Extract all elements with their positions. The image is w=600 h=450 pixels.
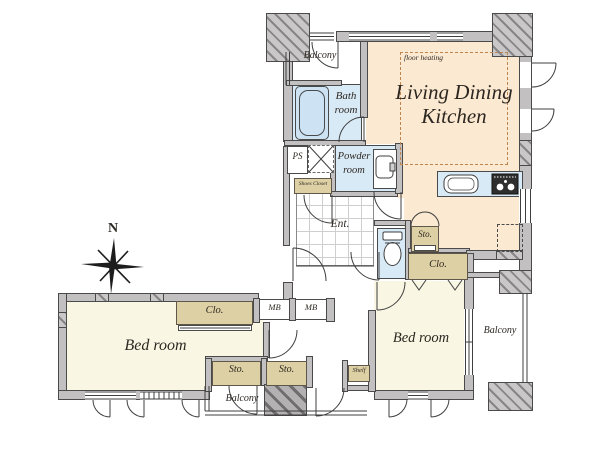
balcony-bottom-label: Balcony (213, 394, 271, 405)
bath-room-label-1: Bath (328, 91, 364, 103)
closet-right-label: Clo. (408, 259, 468, 270)
storage-toilet-label: Sto. (411, 230, 439, 239)
door-ldk-east-2 (532, 109, 554, 131)
window-top-1 (310, 32, 334, 41)
floor-heating-label: floor heating (404, 54, 464, 62)
kitchen-sink (444, 175, 478, 193)
railing-balcony-top (286, 52, 290, 85)
washing-machine-x (309, 146, 333, 172)
floor-plan-canvas: Balcony Bath room Living Dining Kitchen … (0, 0, 600, 450)
door-ldk-east-1 (532, 63, 556, 87)
meter-box-1-label: MB (259, 303, 290, 312)
window-top-3 (437, 32, 463, 41)
door-bedroom-right (377, 282, 405, 310)
powder-room-label-1: Powder (332, 151, 376, 162)
door-bedroom-left (269, 330, 297, 358)
meter-box-2-label: MB (295, 303, 327, 312)
window-bedroom-right-bottom (408, 391, 428, 400)
ldk-label-1: Living Dining (384, 81, 524, 103)
window-bedroom-left-1 (85, 391, 136, 400)
door-front-entrance (293, 248, 326, 281)
bedroom-right-label: Bed room (376, 331, 466, 346)
toilet-fixture (383, 232, 402, 266)
vanity-sink (376, 156, 395, 178)
balcony-right-label: Balcony (477, 326, 523, 337)
door-bedroom-right-ext-1 (389, 399, 407, 417)
railing-balcony-right (523, 293, 527, 383)
shoes-closet-label: Shoes Closet (294, 182, 332, 188)
door-bedroom-left-ext-1 (93, 400, 110, 417)
door-ent-ldk (374, 192, 401, 219)
window-top-2 (349, 32, 430, 41)
pipe-shaft-label: PS (287, 152, 308, 161)
bedroom-left-label: Bed room (103, 338, 208, 355)
bifold-marks-closet-right (412, 280, 462, 290)
door-balcony-hall (316, 388, 344, 416)
closet-left-label: Clo. (176, 305, 253, 316)
window-bedroom-left-2 (140, 391, 182, 400)
door-bedroom-left-ext-3 (182, 400, 199, 417)
kitchen-stove (492, 174, 518, 194)
entrance-label: Ent. (326, 218, 354, 230)
plan-linework (0, 0, 600, 450)
door-bath (339, 117, 364, 142)
bath-room-label-2: room (328, 105, 364, 117)
door-storage-double (411, 212, 439, 226)
door-bedroom-right-ext-2 (431, 399, 449, 417)
shelf-label: Shelf (347, 368, 371, 375)
balcony-top-label: Balcony (296, 51, 344, 62)
powder-room-label-2: room (332, 165, 376, 176)
compass-rose (81, 238, 144, 294)
window-right-wall (519, 189, 532, 223)
ldk-label-2: Kitchen (384, 105, 524, 127)
storage-2-label: Sto. (265, 365, 308, 376)
storage-1-label: Sto. (212, 365, 261, 376)
compass-north-label: N (103, 222, 123, 237)
door-bedroom-left-ext-2 (127, 400, 144, 417)
